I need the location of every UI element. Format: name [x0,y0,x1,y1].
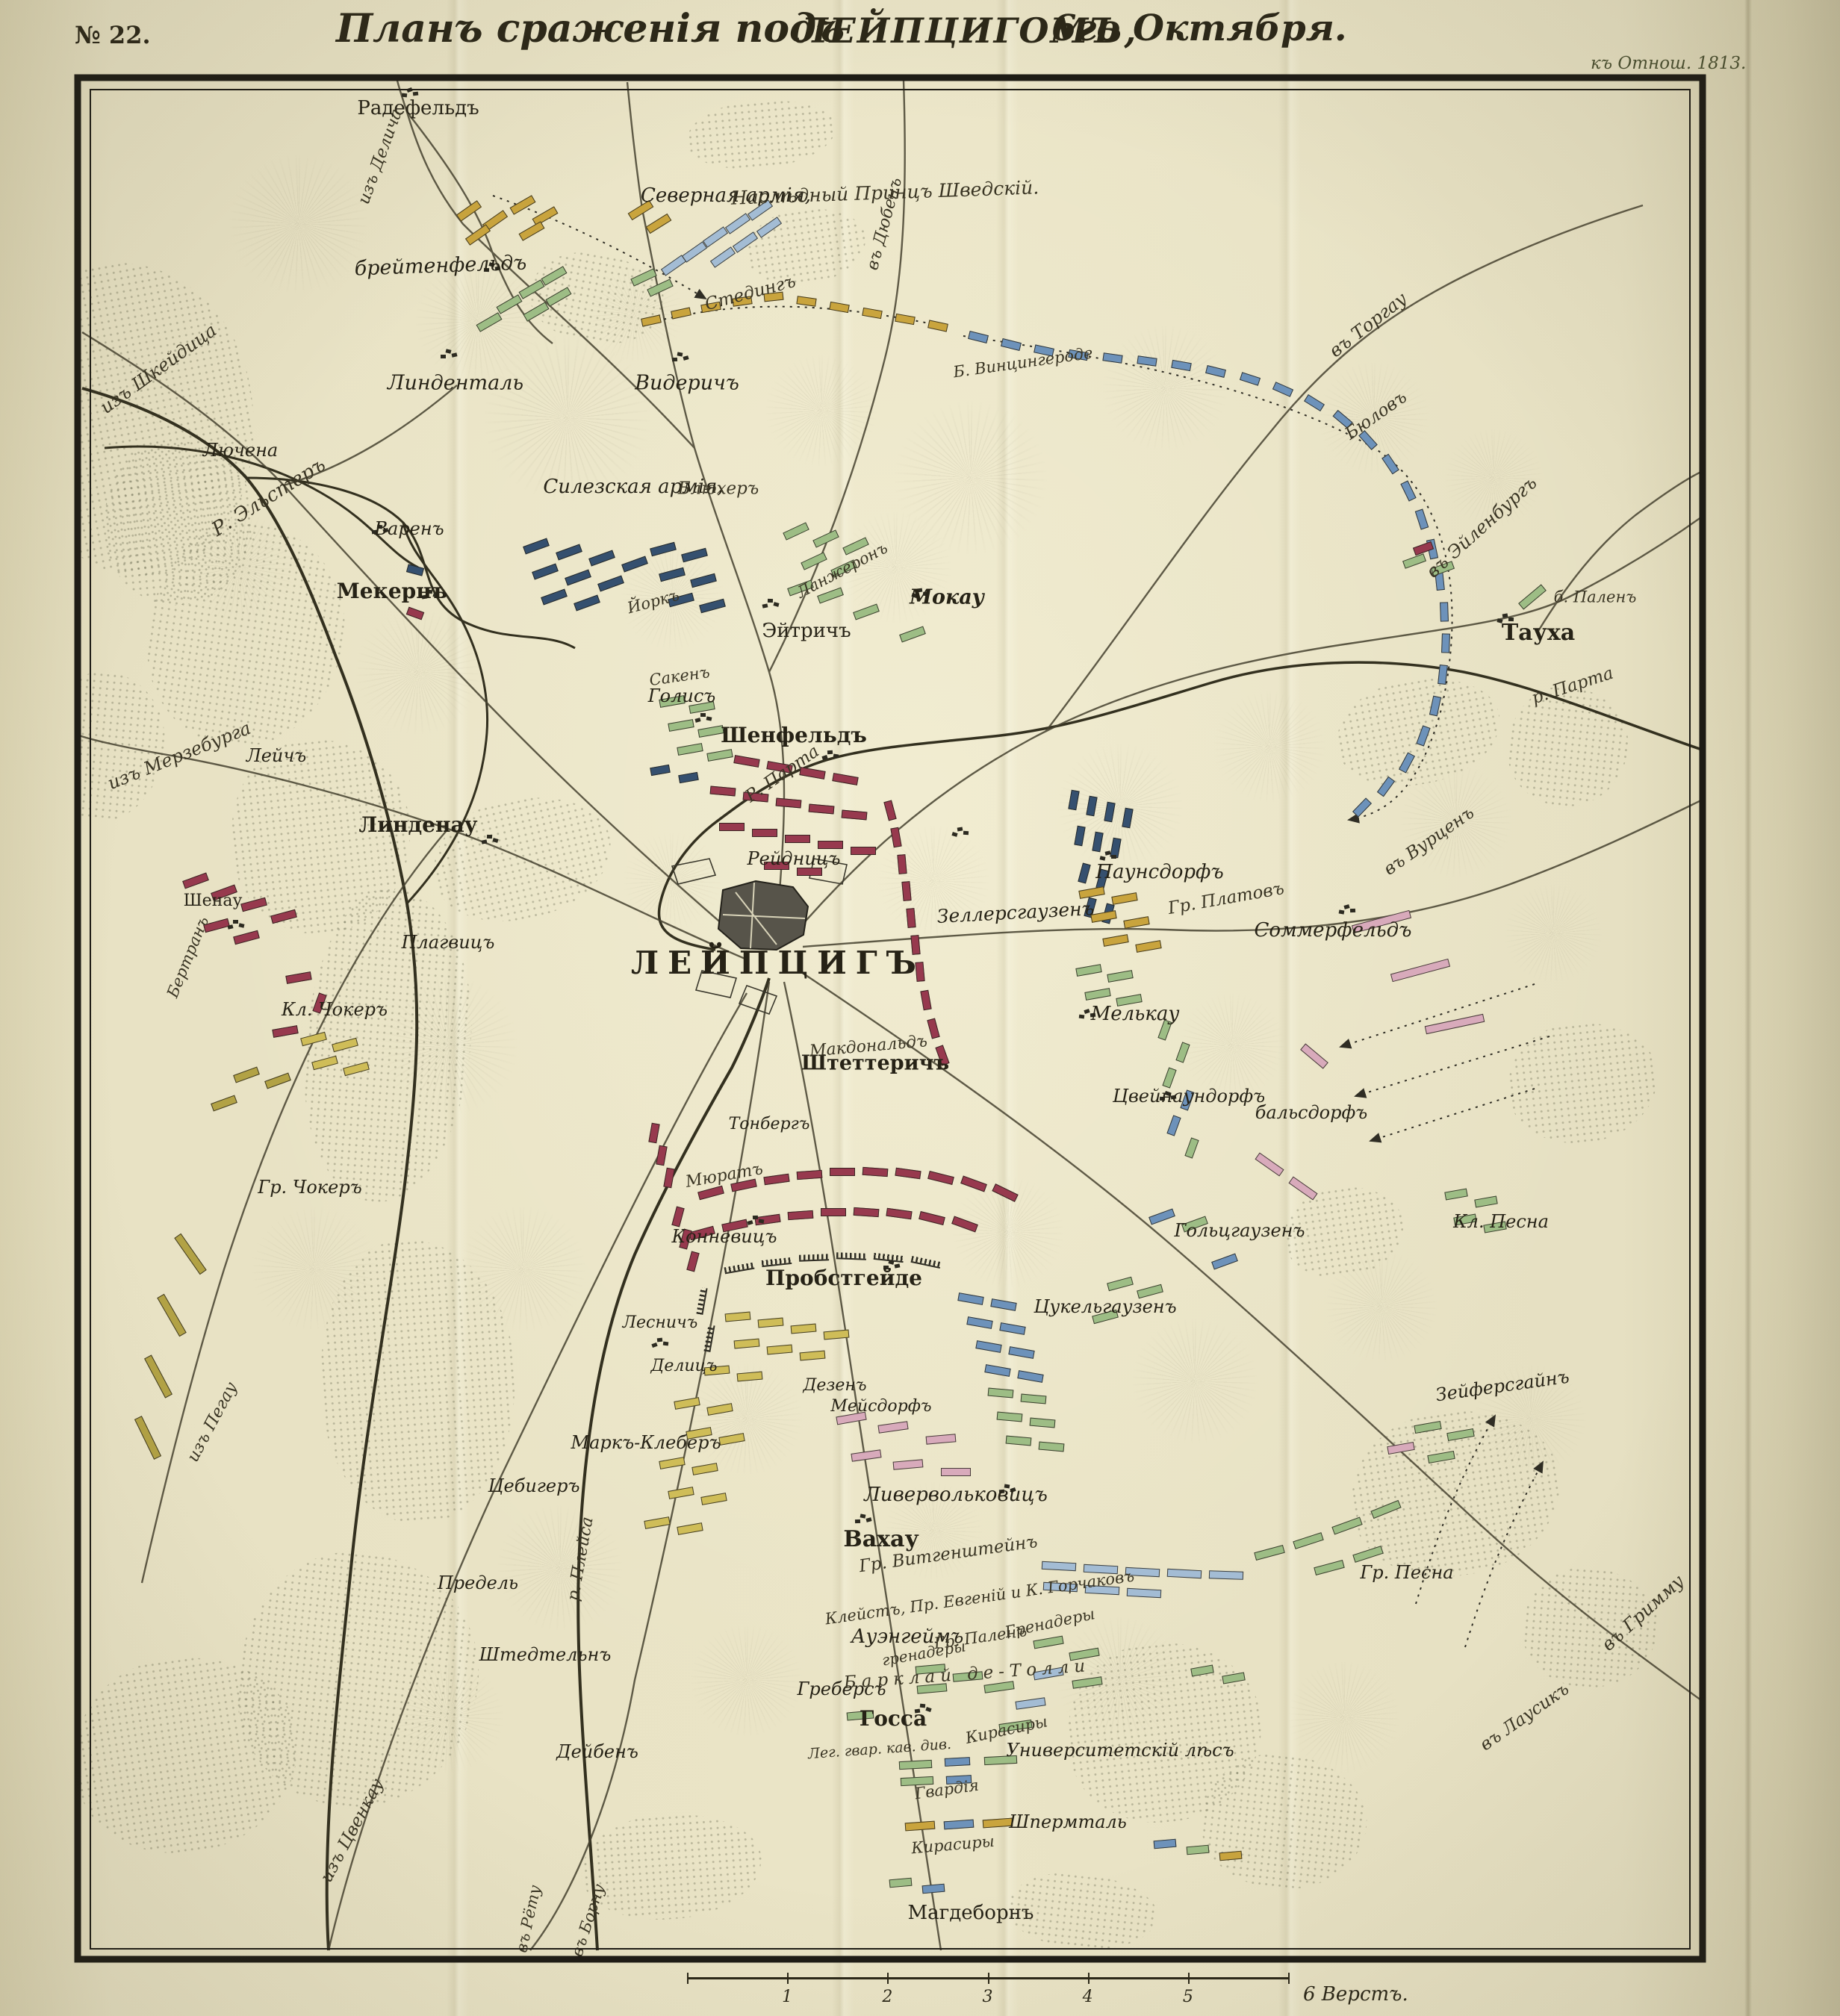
map-label: Гольцгаузенъ [1175,1222,1305,1239]
map-label: Шпермталь [1009,1813,1127,1831]
troop-unit-c [788,1210,814,1220]
troop-unit-c [854,1207,880,1217]
scale-tick-label: 5 [1183,1988,1193,2006]
troop-unit-b [1441,633,1450,653]
map-label: Конневицъ [671,1228,777,1245]
troop-unit-p [941,1468,971,1476]
leipzig-city [672,859,847,1014]
troop-unit-c [862,1167,889,1177]
troop-unit-c [897,854,907,874]
map-label: Госса [860,1708,927,1729]
troop-unit-lb [1042,1561,1077,1571]
map-label: Рейдницъ [747,850,840,868]
village-mark [413,92,419,96]
troop-unit-c [906,908,916,928]
troop-unit-gr [899,1760,933,1770]
scale-tick [1188,1973,1190,1984]
troop-unit-c [797,1170,823,1180]
map-label: Линденталь [388,373,523,393]
map-label: Плагвицъ [402,933,495,951]
map-content: РадефельдъбрейтенфельдъЛиндентальВидерич… [0,0,1840,2016]
map-label: Тонбергъ [729,1116,810,1133]
village-mark [1339,909,1345,914]
map-label: Шенау [184,893,243,909]
scale-tick [787,1973,789,1984]
village-mark [487,835,492,839]
village-mark [1111,855,1116,859]
page-edge-line [1744,0,1752,2016]
map-label: Цебигеръ [488,1477,580,1495]
village-mark [833,753,839,758]
map-label: б. Паленъ [1554,590,1637,606]
map-label: Гр. Чокеръ [258,1178,361,1196]
troop-unit-c [851,847,876,855]
scale-tick [988,1973,989,1984]
troop-unit-c [719,823,745,831]
scale-bar: 12345 [687,1977,1288,1979]
map-label: Дезенъ [803,1378,866,1394]
map-label: Радефельдъ [357,99,479,118]
scale-tick [1288,1973,1290,1984]
village-mark [233,920,238,924]
map-label: Блюхеръ [678,481,759,498]
map-label: Голисъ [648,687,716,705]
corner-annotation: къ Отнош. 1813. [1591,54,1746,73]
map-label: ЛЕЙПЦИГЪ [631,948,925,979]
village-mark [1350,909,1355,912]
map-label: Мокау [910,588,984,608]
village-mark [827,750,833,754]
map-label: Видеричъ [635,373,739,393]
map-label: Дейбенъ [556,1743,638,1761]
map-label: Соммерфельдъ [1255,921,1412,940]
troop-unit-c [821,1208,846,1216]
scale-tick-label: 1 [782,1988,792,2006]
map-label: Мелькау [1091,1004,1180,1024]
map-label: Делицъ [650,1358,717,1375]
village-mark [753,1216,758,1219]
village-mark [855,1519,860,1523]
map-label: Пробстгейде [765,1268,922,1289]
map-label: Шенфельдъ [721,725,867,746]
village-mark [768,599,773,603]
village-mark [663,1342,669,1346]
scale-tick-label: 3 [983,1988,993,2006]
map-label: Линденау [358,815,477,836]
map-title-date: 6го Октября. [1051,7,1347,49]
village-mark [657,1338,662,1343]
troop-unit-c [785,835,810,843]
map-label: Кл. Песна [1453,1213,1549,1231]
sheet-number: № 22. [75,21,151,49]
map-label: Ливервольковицъ [864,1485,1048,1505]
map-label: Вахау [843,1528,919,1551]
map-label: Цукельгаузенъ [1034,1298,1176,1316]
scale-label: 6 Верстъ. [1303,1983,1408,2006]
map-label: Мейсдорфъ [830,1399,931,1415]
map-label: Лючена [203,441,278,459]
village-mark [759,1219,765,1223]
scale-tick-label: 4 [1083,1988,1093,2006]
map-label: Маркъ-Клеберъ [571,1434,721,1452]
troop-unit-b [1440,602,1449,621]
village-mark [672,358,677,361]
map-label: брейтенфельдъ [354,252,526,279]
map-label: Цвейнаундорфъ [1113,1087,1265,1105]
scale-tick [887,1973,889,1984]
map-label: Варенъ [374,520,444,538]
village-mark [1079,1015,1085,1019]
village-mark [963,831,969,835]
village-mark [700,713,706,717]
map-label: Предель [438,1574,518,1592]
scale-tick-label: 2 [882,1988,892,2006]
troop-unit-c [830,1168,855,1176]
troop-unit-c [901,881,911,901]
map-label: Университетскій лѣсъ [1006,1741,1234,1759]
map-title-script: Планъ сраженія подъ [336,6,845,52]
scale-tick [687,1973,689,1984]
map-label: Мекернъ [337,581,447,602]
map-label: Эйтричъ [762,621,851,641]
village-mark [441,355,446,358]
troop-unit-c [752,829,777,837]
troop-unit-b [945,1757,971,1767]
troop-unit-lb [1127,1588,1162,1598]
troop-unit-h [799,1254,829,1261]
map-label: Магдеборнъ [908,1903,1034,1923]
map-label: Тауха [1502,622,1575,644]
map-label: Штедтельнъ [479,1646,612,1664]
map-label: Лейчъ [246,747,307,765]
scale-tick [1088,1973,1090,1984]
map-label: Паунсдорфъ [1095,862,1223,882]
scanned-battle-map-page: { "page": { "no": "№ 22.", "title_script… [0,0,1840,2016]
map-label: бальсдорфъ [1255,1104,1368,1121]
troop-unit-h [836,1252,866,1260]
map-label: Кл. Чокеръ [282,1001,388,1018]
village-mark [677,352,683,356]
troop-unit-lb [1167,1569,1202,1578]
map-label: Гр. Песна [1360,1564,1453,1581]
map-label: Лесничъ [623,1315,698,1331]
troop-unit-lb [1209,1570,1243,1580]
